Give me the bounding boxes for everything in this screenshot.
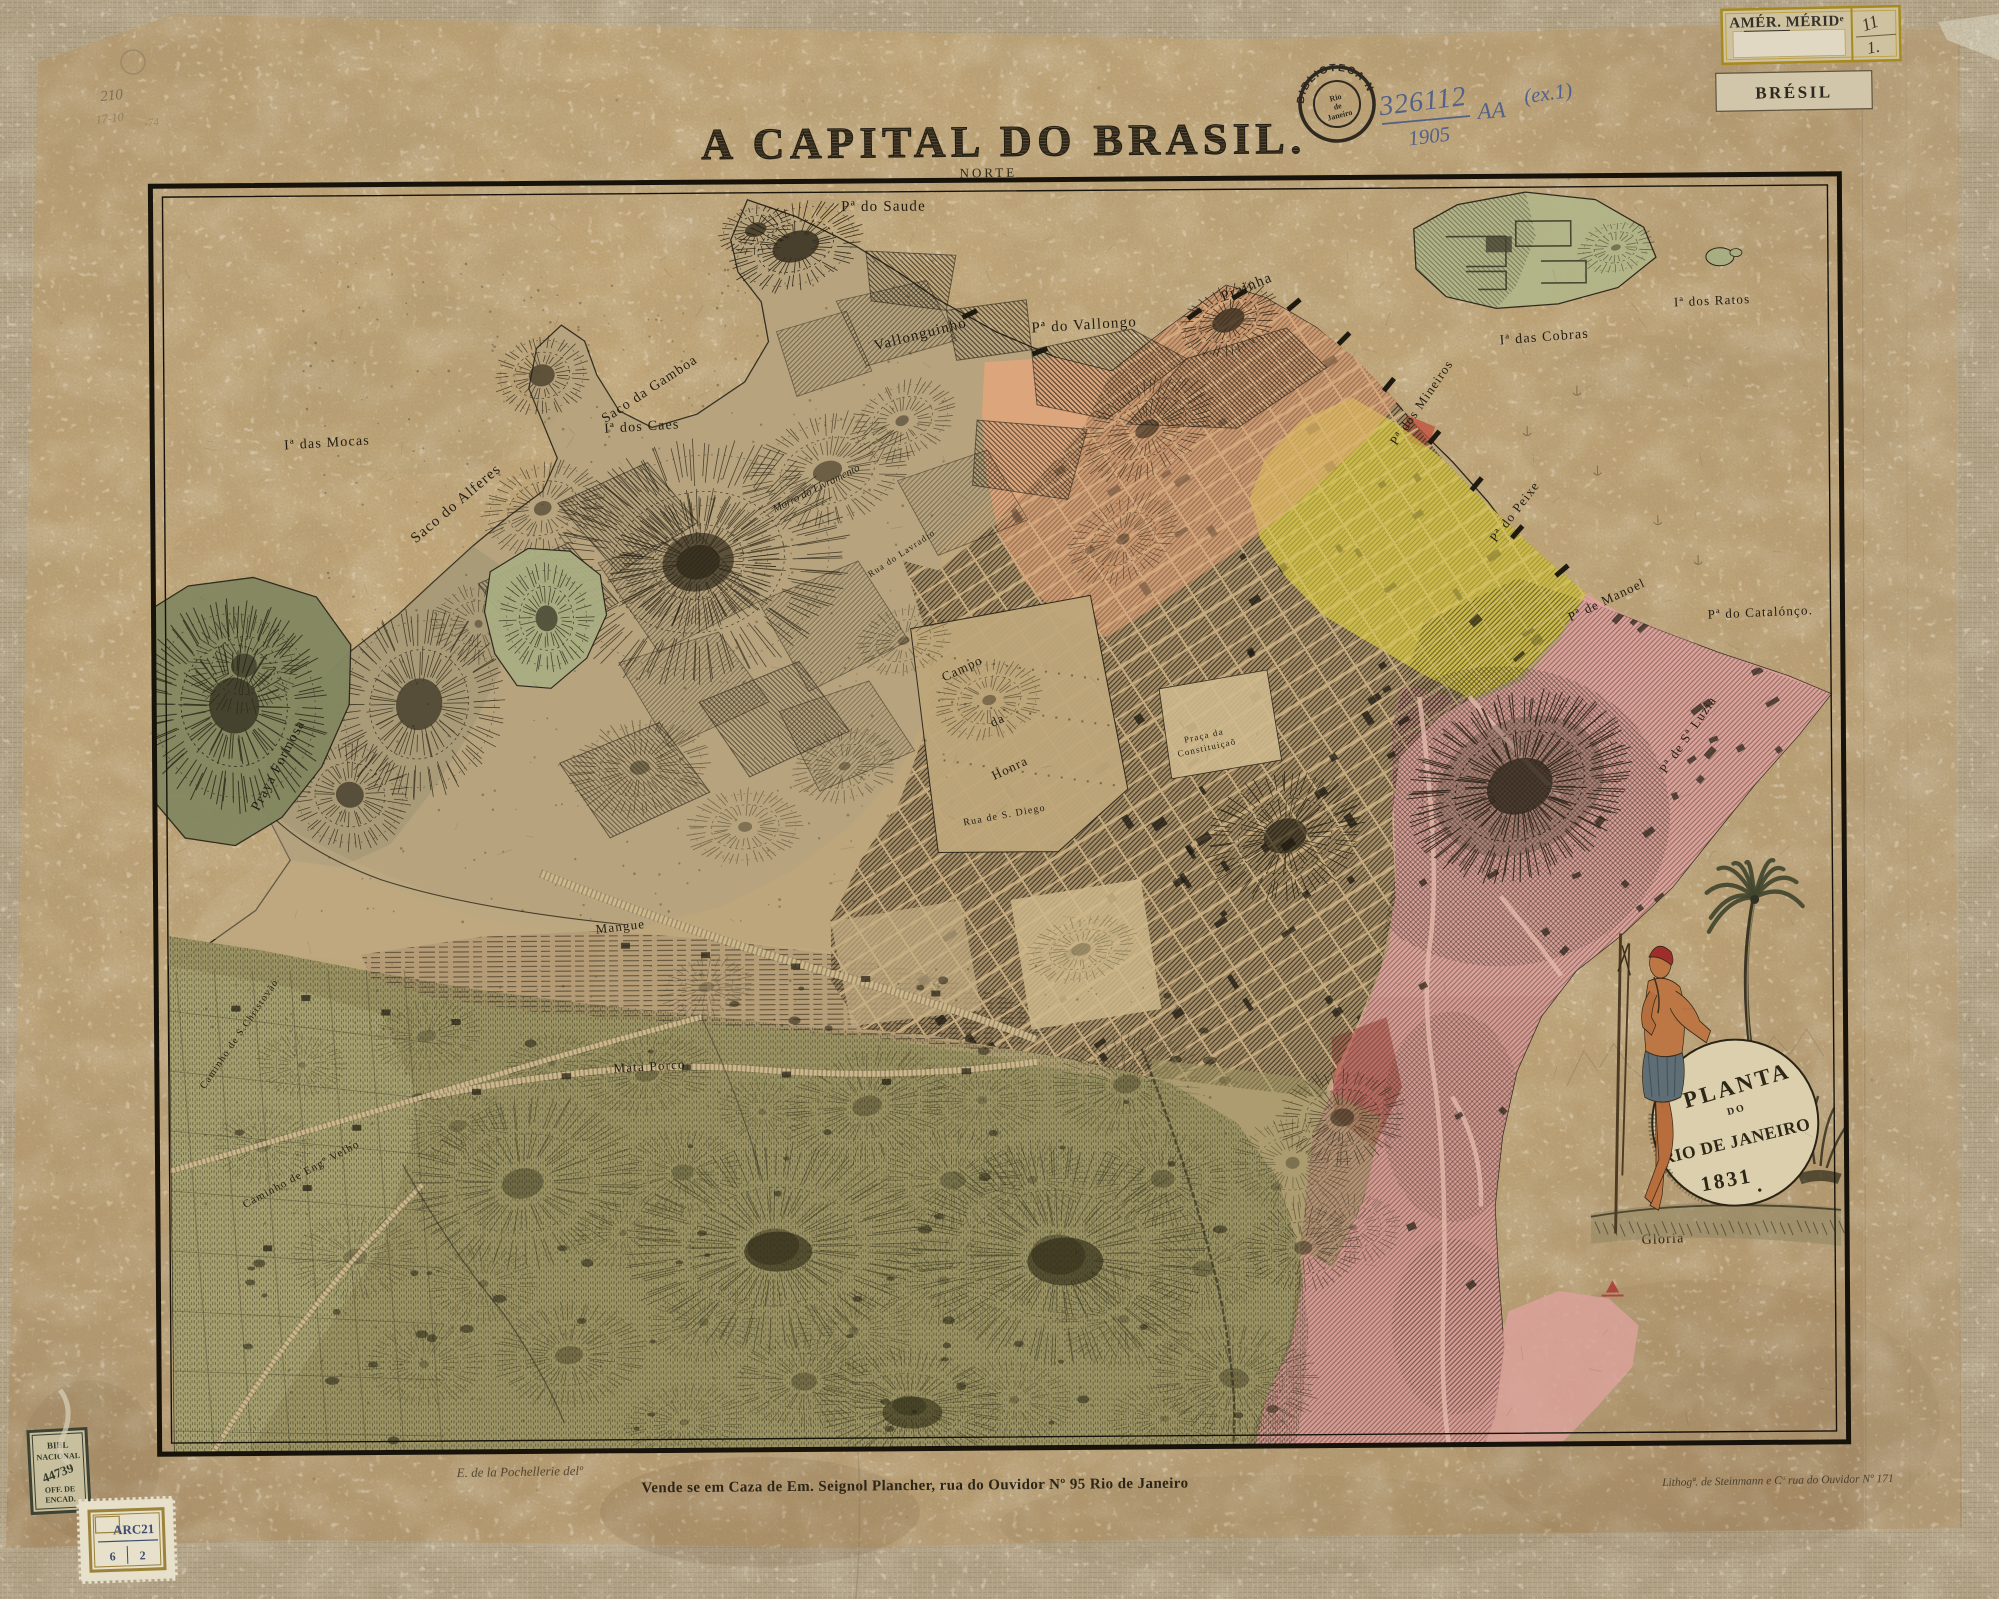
- svg-text:A CAPITAL DO BRASIL.: A CAPITAL DO BRASIL.: [701, 114, 1307, 169]
